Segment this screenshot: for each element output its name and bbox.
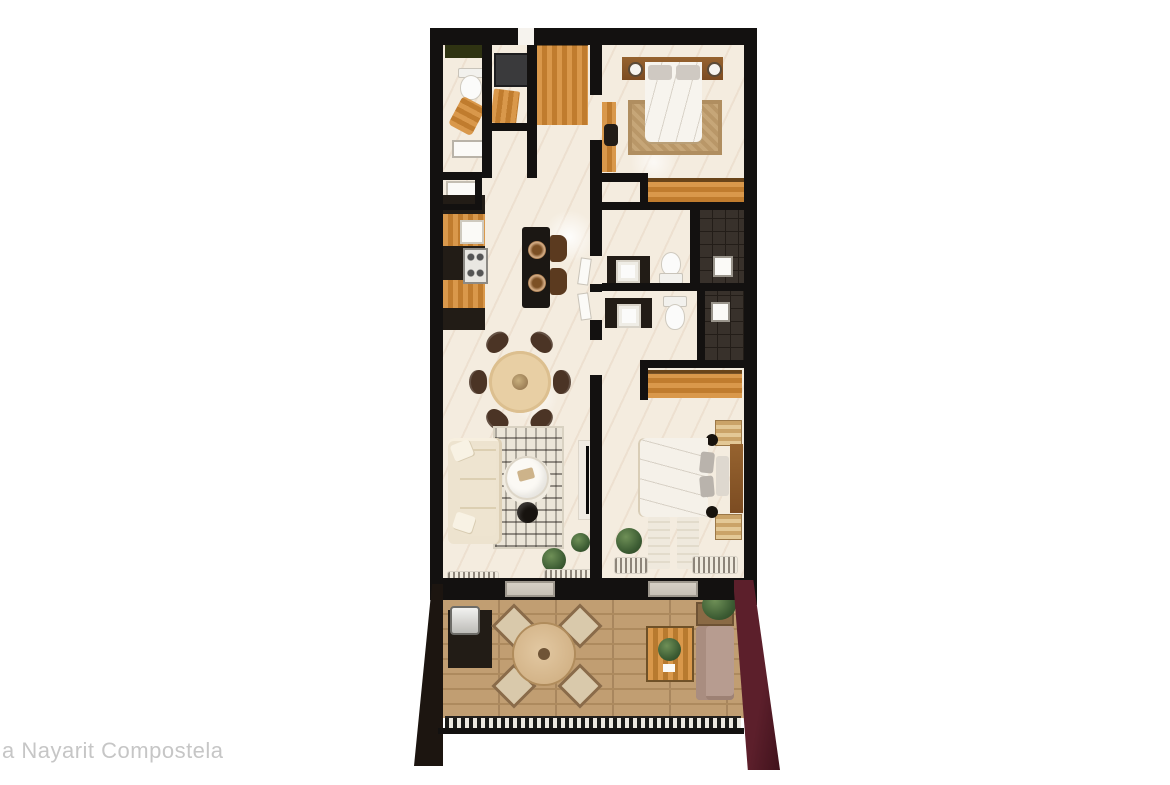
wall-niche-bottom bbox=[443, 204, 482, 210]
wall-bed2-closet-stub bbox=[640, 360, 648, 400]
wall-closet-right bbox=[527, 45, 537, 178]
bed1-pillow-left bbox=[648, 65, 672, 80]
bed2-pillow-2 bbox=[699, 475, 715, 497]
wall-niche-side bbox=[475, 180, 482, 206]
bed2-runner-1 bbox=[648, 517, 670, 569]
wall-shower1-partition bbox=[690, 208, 700, 283]
canvas: a Nayarit Compostela bbox=[0, 0, 1170, 785]
terrace-sofa bbox=[696, 626, 734, 700]
wall-powder-bottom bbox=[443, 172, 482, 180]
wall-center-seg1 bbox=[590, 45, 602, 95]
bed2-mattress bbox=[638, 438, 708, 517]
terrace-table-centerpiece bbox=[538, 648, 550, 660]
bed2-wardrobe bbox=[648, 370, 742, 398]
wall-right bbox=[744, 28, 757, 605]
bath2-sink bbox=[617, 304, 641, 328]
bar-stool-1 bbox=[550, 235, 567, 262]
wall-shower2-partition bbox=[697, 291, 705, 360]
kitchen-counter-wood-2 bbox=[443, 280, 485, 308]
living-plant-2 bbox=[571, 533, 590, 552]
dining-centerpiece bbox=[512, 374, 528, 390]
side-table bbox=[517, 502, 538, 523]
kitchen-island bbox=[522, 227, 550, 308]
wall-left-perspective bbox=[414, 584, 443, 766]
wall-closet-bottom bbox=[492, 123, 527, 131]
terrace-table-plant bbox=[658, 638, 681, 661]
kitchen-sink bbox=[460, 220, 484, 244]
wall-center-seg5 bbox=[590, 375, 602, 600]
floor-plan bbox=[430, 28, 757, 765]
bar-stool-2 bbox=[550, 268, 567, 295]
entry-door-opening bbox=[518, 28, 534, 45]
wall-bed1-bath1 bbox=[602, 202, 744, 210]
dining-chair-3 bbox=[469, 370, 487, 394]
terrace-bottom-edge bbox=[438, 728, 744, 734]
bed2-nightstand-top bbox=[715, 420, 742, 446]
wall-powder-right bbox=[482, 45, 492, 178]
stove-cooktop bbox=[463, 248, 488, 284]
dining-chair-4 bbox=[553, 370, 571, 394]
bed1-desk-chair bbox=[604, 124, 618, 146]
wall-center-seg4 bbox=[590, 320, 602, 340]
bed2-plant bbox=[616, 528, 642, 554]
bed1-lamp-left bbox=[628, 62, 643, 77]
bed2-nightstand-bottom bbox=[715, 514, 742, 540]
bath1-sink bbox=[616, 260, 640, 283]
bed2-lamp-bottom bbox=[706, 506, 718, 518]
wall-center-seg2 bbox=[590, 140, 602, 256]
shower2-bench bbox=[711, 302, 730, 322]
wall-left bbox=[430, 28, 443, 600]
washer bbox=[494, 53, 529, 87]
bath2-toilet-bowl bbox=[665, 304, 685, 330]
wall-bath1-bath2 bbox=[602, 283, 744, 291]
island-round-board-2 bbox=[528, 274, 546, 292]
wall-center-seg3 bbox=[590, 284, 602, 292]
pantry-cabinet bbox=[537, 40, 588, 125]
bed1-lamp-right bbox=[707, 62, 722, 77]
bed2-pillow-3 bbox=[716, 456, 729, 496]
shower1-bench bbox=[713, 256, 733, 277]
grill bbox=[450, 606, 480, 635]
project-caption: a Nayarit Compostela bbox=[2, 738, 224, 764]
wall-right-maroon bbox=[734, 580, 780, 770]
bed2-headboard bbox=[730, 444, 743, 513]
island-round-board-1 bbox=[528, 241, 546, 259]
bed2-sliding-door bbox=[648, 581, 698, 597]
bed2-doormat-2 bbox=[693, 557, 737, 573]
tv-screen bbox=[586, 446, 589, 514]
wall-top bbox=[430, 28, 757, 45]
living-sliding-door bbox=[505, 581, 555, 597]
bed1-pillow-right bbox=[676, 65, 700, 80]
closet-door-panel bbox=[490, 89, 520, 126]
bed2-pillow-1 bbox=[699, 451, 715, 473]
wall-terrace-band bbox=[430, 578, 757, 600]
bed2-doormat-1 bbox=[615, 558, 647, 573]
living-plant-1 bbox=[542, 548, 566, 572]
wall-bath2-bed2 bbox=[640, 360, 744, 368]
terrace-table-magazine bbox=[663, 664, 675, 672]
